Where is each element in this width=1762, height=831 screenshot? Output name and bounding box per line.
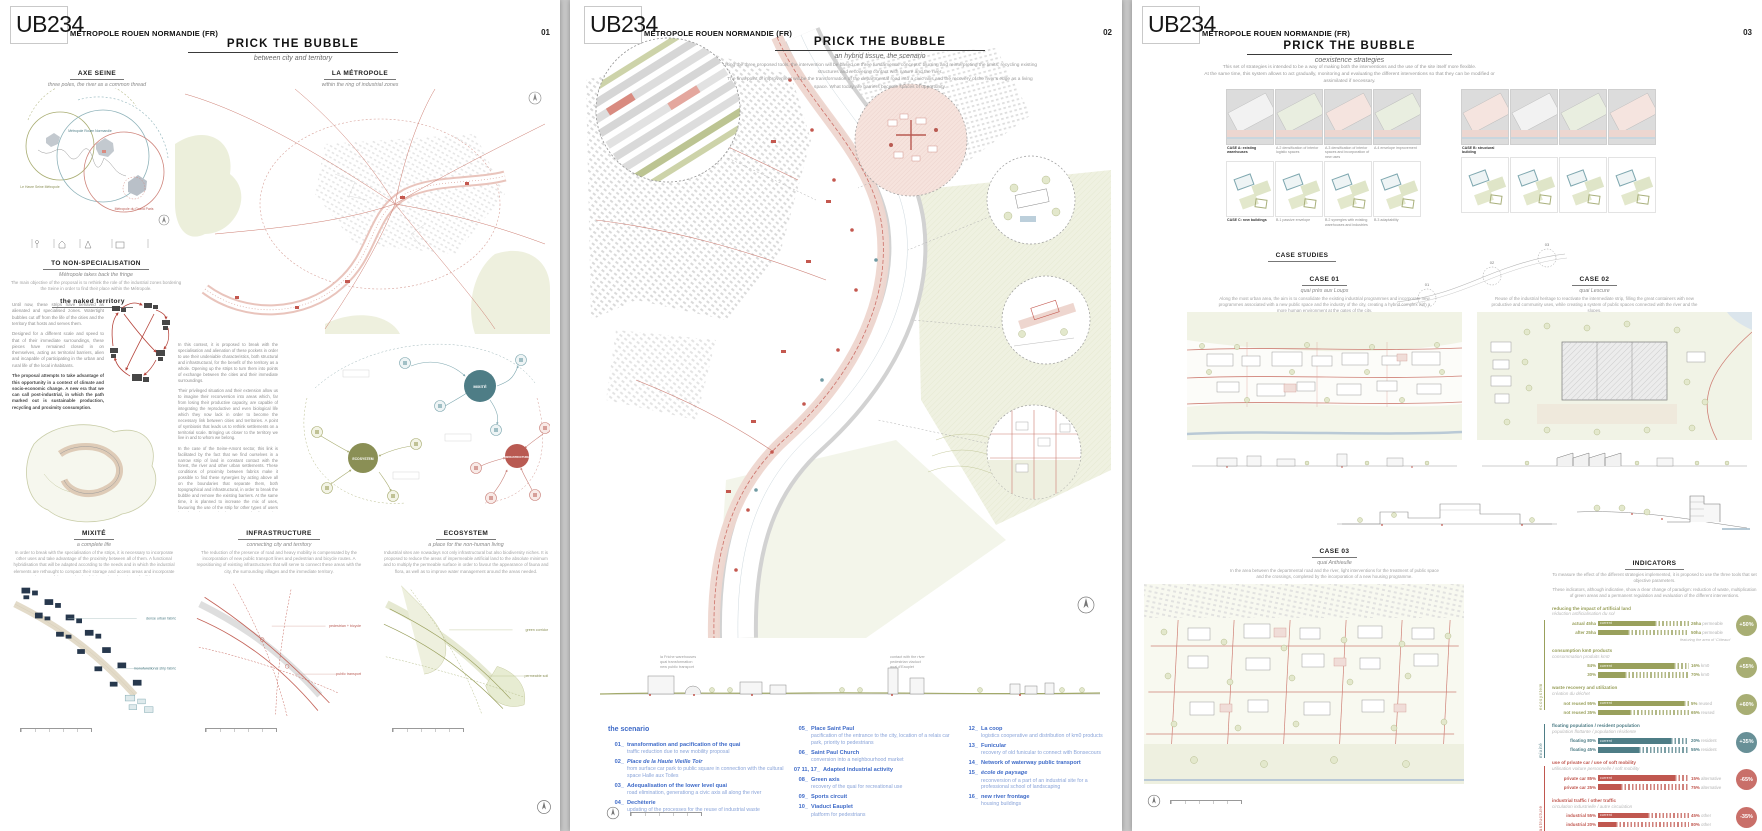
indicator-badge: -65% bbox=[1736, 769, 1757, 790]
thumbnail-caption: B.2 synergies with existing warehouses a… bbox=[1325, 218, 1371, 227]
metropole-map bbox=[175, 84, 550, 334]
case-thumbnail bbox=[1325, 90, 1371, 144]
non-spec-subtitle: Métropole takes back the fringe bbox=[10, 272, 182, 278]
map-label: pedestrian + bicycle bbox=[329, 624, 361, 628]
mixite-map: dense urban fabric monofunctional strip … bbox=[10, 580, 178, 724]
thumbnail-caption: CASE B: structural building bbox=[1462, 146, 1508, 155]
board-panel-03: UB234 MÉTROPOLE ROUEN NORMANDIE (FR) 03 … bbox=[1132, 0, 1762, 831]
scenario-legend-col3: 12_La cooplogistics cooperative and dist… bbox=[962, 726, 1114, 811]
case01-section bbox=[1187, 446, 1462, 472]
board-title-block: PRICK THE BUBBLE an hybrid tissue, the s… bbox=[775, 36, 985, 60]
north-compass-icon bbox=[536, 799, 552, 815]
case01-heading: CASE 01 quai près aux Loups Along the mo… bbox=[1217, 268, 1432, 316]
indicator-row: after 25ha50ha permeable bbox=[1552, 628, 1731, 637]
legend-item: 15_école de paysagereconversion of a par… bbox=[962, 770, 1114, 791]
case03-heading: CASE 03 quai Anthieulle In the area betw… bbox=[1227, 540, 1442, 584]
board-panel-01: UB234 MÉTROPOLE ROUEN NORMANDIE (FR) 01 … bbox=[0, 0, 560, 831]
map-label: green corridor bbox=[526, 627, 549, 631]
case-thumbnail bbox=[1276, 162, 1322, 216]
client-label: MÉTROPOLE ROUEN NORMANDIE (FR) bbox=[644, 29, 792, 38]
indicators-title: INDICATORS bbox=[1625, 560, 1685, 570]
case-thumbnail bbox=[1609, 158, 1655, 212]
page-number: 01 bbox=[541, 28, 550, 37]
hub-mixite-label: MIXITÉ bbox=[473, 384, 487, 389]
legend-item: 09_Sports circuit bbox=[792, 794, 960, 801]
legend-item: 13_Funicularrecovery of old funicular to… bbox=[962, 743, 1114, 757]
svg-text:02: 02 bbox=[1490, 260, 1495, 265]
case-thumbnail bbox=[1227, 90, 1273, 144]
north-compass-icon bbox=[1147, 794, 1161, 808]
map-label: monofunctional strip fabric bbox=[134, 666, 176, 670]
page-number: 02 bbox=[1103, 28, 1112, 37]
section-note: contact with the river bbox=[890, 655, 926, 659]
axe-seine-title: AXE SEINE bbox=[70, 70, 124, 80]
thumbnail-caption bbox=[1511, 146, 1557, 155]
map-label: public transport bbox=[336, 672, 361, 676]
scale-bar bbox=[20, 728, 92, 732]
urban-section-drawing: la Friche warehouses quai transformation… bbox=[590, 650, 1110, 708]
legend-item: 08_Green axisrecovery of the quai for re… bbox=[792, 777, 960, 791]
strategy-infrastructure: INFRASTRUCTURE connecting city and terri… bbox=[195, 522, 363, 732]
competition-boards: UB234 MÉTROPOLE ROUEN NORMANDIE (FR) 01 … bbox=[0, 0, 1762, 831]
north-arrow-icon bbox=[533, 93, 537, 101]
case-thumbnail bbox=[1227, 162, 1273, 216]
indicator-row: industrial 55%current45% other bbox=[1552, 811, 1731, 820]
venn-label-rouen: Métropole Rouen Normandie bbox=[68, 129, 112, 133]
legend-item: 03_Adequalisation of the lower level qua… bbox=[608, 783, 788, 797]
indicator-badge: +60% bbox=[1736, 694, 1757, 715]
ecosystem-map: green corridor permeable soil bbox=[382, 580, 550, 724]
paragraph: In this context, it is proposed to break… bbox=[178, 342, 278, 384]
case-grid-right: CASE B: structural building bbox=[1462, 90, 1655, 214]
case-thumbnail bbox=[1511, 158, 1557, 212]
case-thumbnail bbox=[1276, 90, 1322, 144]
board-title: PRICK THE BUBBLE bbox=[188, 38, 398, 53]
indicator-group-km0: consumption km0 productsconsommation pro… bbox=[1552, 648, 1757, 679]
context-text: In this context, it is proposed to break… bbox=[178, 342, 278, 512]
indicator-badge: +35% bbox=[1736, 732, 1757, 753]
thumbnail-caption: A.4 envelope improvement bbox=[1374, 146, 1420, 159]
section-note: new public transport bbox=[660, 665, 695, 669]
thumbnail-caption: CASE C: new buildings bbox=[1227, 218, 1273, 227]
exchange-cycle-diagram bbox=[106, 300, 174, 392]
north-arrow-icon bbox=[1084, 598, 1089, 608]
legend-item: 02_Place de la Haute Vieille Toirfrom su… bbox=[608, 759, 788, 780]
legend-item: 01_transformation and pacification of th… bbox=[608, 742, 788, 756]
case-studies-heading: CASE STUDIES bbox=[1227, 244, 1377, 262]
board-title: PRICK THE BUBBLE bbox=[775, 36, 985, 51]
case-thumbnail bbox=[1511, 90, 1557, 144]
indicator-group-industrial-traffic: industrial traffic / other trafficcircul… bbox=[1552, 798, 1757, 829]
indicator-row: private car 25%75% alternative bbox=[1552, 783, 1731, 792]
indicator-row: not reused 35%65% reused bbox=[1552, 708, 1731, 717]
indicator-row: not reused 95%current5% reused bbox=[1552, 699, 1731, 708]
paragraph: In the case of the Seine-Amont sector, t… bbox=[178, 446, 278, 512]
paragraph: Until now, these strips have behaved as … bbox=[12, 302, 104, 327]
indicator-note: featuring the area of ‘Côteaux’ bbox=[1552, 638, 1731, 642]
board-intro: Using the three proposed tools, the inte… bbox=[720, 62, 1040, 91]
scale-bar bbox=[392, 728, 464, 732]
axe-seine-section: AXE SEINE three poles, the river as a co… bbox=[18, 62, 176, 250]
paragraph: Their privileged situation and their ext… bbox=[178, 388, 278, 442]
board-intro: This set of strategies is intended to be… bbox=[1197, 64, 1502, 86]
indicator-row: floating 80%current20% resident bbox=[1552, 736, 1731, 745]
indicator-group-artificial-land: reducing the impact of artificial landré… bbox=[1552, 606, 1757, 642]
category-label-infrastructure: infrastructure bbox=[1538, 766, 1545, 831]
indicators-intro: These indicators, although indicative, s… bbox=[1552, 587, 1757, 600]
scenario-legend-col1: 01_transformation and pacification of th… bbox=[608, 742, 788, 817]
legend-item: 10_Viaduct Eaupletplatform for pedestria… bbox=[792, 804, 960, 818]
axe-seine-venn-diagram: Métropole Rouen Normandie Le Havre Seine… bbox=[18, 88, 173, 238]
category-label-ecosystem: ecosystem bbox=[1538, 620, 1545, 710]
case03-plan bbox=[1144, 584, 1464, 784]
case02-plan bbox=[1477, 312, 1752, 440]
case-thumbnail bbox=[1560, 90, 1606, 144]
venn-label-havre: Le Havre Seine Métropole bbox=[20, 185, 60, 189]
indicator-row: 30%70% km0 bbox=[1552, 670, 1731, 679]
board-title: PRICK THE BUBBLE bbox=[1247, 40, 1452, 55]
case02-heading: CASE 02 quai Lescure Reuse of the indust… bbox=[1487, 268, 1702, 316]
scale-bar bbox=[630, 812, 702, 816]
indicators-intro: To measure the effect of the different s… bbox=[1552, 572, 1757, 585]
section-note: pedestrian viaduct bbox=[890, 660, 922, 664]
board-subtitle: between city and territory bbox=[188, 55, 398, 62]
legend-icons-row bbox=[28, 238, 158, 250]
non-specialisation-section: TO NON-SPECIALISATION Métropole takes ba… bbox=[10, 252, 182, 292]
legend-item: 06_Saint Paul Churchconversion into a ne… bbox=[792, 750, 960, 764]
north-compass-icon bbox=[606, 806, 620, 820]
map-label: permeable soil bbox=[525, 673, 549, 677]
case-thumbnail bbox=[1374, 162, 1420, 216]
paragraph: The proposal attempts to take advantage … bbox=[12, 373, 104, 410]
legend-item: 12_La cooplogistics cooperative and dist… bbox=[962, 726, 1114, 740]
case-thumbnail bbox=[1560, 158, 1606, 212]
board-title-block: PRICK THE BUBBLE between city and territ… bbox=[188, 38, 398, 62]
indicator-group-waste: waste recovery and utilizationcréation d… bbox=[1552, 685, 1757, 716]
case-thumbnail bbox=[1374, 90, 1420, 144]
indicator-row: industrial 20%80% other bbox=[1552, 820, 1731, 829]
infrastructure-map: pedestrian + bicycle public transport bbox=[195, 580, 363, 724]
thumbnail-caption: A.3 densification of interior spaces and… bbox=[1325, 146, 1371, 159]
case01-plan bbox=[1187, 312, 1462, 440]
scenario-legend-col2: 05_Place Saint Paulpacification of the e… bbox=[792, 726, 960, 821]
indicator-row: actual 45hacurrent26ha permeable bbox=[1552, 619, 1731, 628]
section-note: la Friche warehouses bbox=[660, 655, 696, 659]
legend-item: 05_Place Saint Paulpacification of the e… bbox=[792, 726, 960, 747]
paragraph: Designed for a different scale and speed… bbox=[12, 331, 104, 369]
client-label: MÉTROPOLE ROUEN NORMANDIE (FR) bbox=[1202, 29, 1350, 38]
case03-long-section-right bbox=[1572, 482, 1757, 534]
case03-long-section-left bbox=[1332, 482, 1562, 534]
client-label: MÉTROPOLE ROUEN NORMANDIE (FR) bbox=[70, 29, 218, 38]
venn-label-paris: Métropole du Grand Paris bbox=[115, 207, 154, 211]
naked-territory-text: Until now, these strips have behaved as … bbox=[12, 302, 104, 410]
thumbnail-caption bbox=[1609, 146, 1655, 155]
hub-ecosystem-label: ECOSYSTEM bbox=[352, 457, 373, 461]
indicator-badge: +50% bbox=[1736, 615, 1757, 636]
indicator-row: private car 85%current15% alternative bbox=[1552, 774, 1731, 783]
case-thumbnail bbox=[1609, 90, 1655, 144]
board-panel-02: UB234 MÉTROPOLE ROUEN NORMANDIE (FR) 02 … bbox=[570, 0, 1122, 831]
map-label: dense urban fabric bbox=[146, 616, 176, 620]
svg-text:03: 03 bbox=[1545, 242, 1550, 247]
hub-infrastructure-label: INFRASTRUCTURE bbox=[505, 455, 529, 459]
thumbnail-caption: CASE A: existing warehouses bbox=[1227, 146, 1273, 159]
scenario-legend-title: the scenario bbox=[608, 726, 649, 733]
thumbnail-caption: B.1 passive envelope bbox=[1276, 218, 1322, 227]
legend-item: 16_new river frontagehousing buildings bbox=[962, 794, 1114, 808]
legend-item: 07 11, 17_Adapted industrial activity bbox=[792, 767, 960, 774]
category-label-mixite: mixité bbox=[1538, 724, 1545, 758]
legend-item: 14_Network of waterway public transport bbox=[962, 760, 1114, 767]
indicator-badge: -35% bbox=[1736, 807, 1757, 828]
board-title-block: PRICK THE BUBBLE coexistence strategies bbox=[1247, 40, 1452, 64]
board-subtitle: an hybrid tissue, the scenario bbox=[775, 53, 985, 60]
indicator-group-population: floating population / resident populatio… bbox=[1552, 723, 1757, 754]
indicator-row: floating 45%55% resident bbox=[1552, 745, 1731, 754]
north-arrow-icon bbox=[162, 216, 166, 223]
thumbnail-caption bbox=[1560, 146, 1606, 155]
case-thumbnail bbox=[1462, 90, 1508, 144]
scale-bar bbox=[1170, 800, 1242, 804]
thumbnail-caption: B.3 adaptability bbox=[1374, 218, 1420, 227]
page-number: 03 bbox=[1743, 28, 1752, 37]
section-note: quai transformation bbox=[660, 660, 693, 664]
board-subtitle: coexistence strategies bbox=[1247, 57, 1452, 64]
case-thumbnail bbox=[1462, 158, 1508, 212]
thumbnail-caption: A.2 densification of interior logistic s… bbox=[1276, 146, 1322, 159]
strategy-mixite: MIXITÉ a complete life In order to break… bbox=[10, 522, 178, 732]
strategy-ecosystem: ECOSYSTEM a place for the non-human livi… bbox=[382, 522, 550, 732]
indicator-row: 84%current16% km0 bbox=[1552, 661, 1731, 670]
scale-bar bbox=[205, 728, 277, 732]
case-grid-left: CASE A: existing warehouses A.2 densific… bbox=[1227, 90, 1420, 227]
indicator-badge: +55% bbox=[1736, 657, 1757, 678]
case-thumbnail bbox=[1325, 162, 1371, 216]
non-spec-title: TO NON-SPECIALISATION bbox=[43, 260, 149, 270]
indicators-section: INDICATORS To measure the effect of the … bbox=[1552, 552, 1757, 831]
indicator-group-private-car: use of private car / use of soft mobilit… bbox=[1552, 760, 1757, 791]
territory-blob-map bbox=[14, 414, 164, 529]
case02-section bbox=[1477, 446, 1752, 472]
masterplan-map bbox=[576, 20, 1111, 638]
concept-network-diagram: MIXITÉ ECOSYSTEM INFRASTRUCTURE bbox=[285, 338, 550, 513]
